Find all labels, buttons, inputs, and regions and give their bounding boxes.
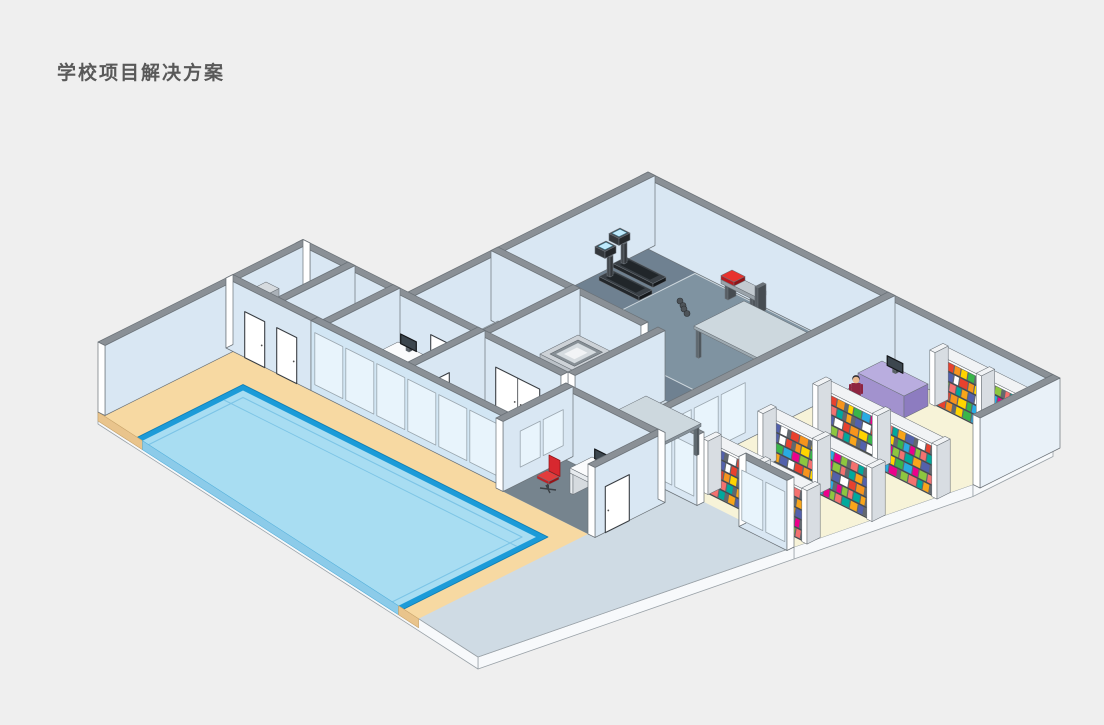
door [245, 312, 265, 368]
wall-cut [226, 275, 233, 349]
shelf-panel [930, 350, 935, 406]
shelf-panel [932, 443, 937, 499]
window [766, 482, 785, 541]
building-illustration [68, 172, 1060, 669]
wall-cut [496, 418, 503, 492]
window [742, 470, 763, 530]
shelf-panel [867, 466, 872, 522]
wall-cut [588, 464, 595, 538]
wall-cut [787, 477, 794, 551]
page: 学校项目解决方案 [0, 0, 1104, 725]
wall-cut [98, 342, 105, 416]
school-floorplan-illustration [0, 0, 1104, 725]
window [675, 437, 694, 497]
door [277, 328, 297, 384]
shelf-panel [802, 488, 807, 544]
wall-cut [973, 415, 980, 489]
wall-cut [658, 429, 665, 503]
